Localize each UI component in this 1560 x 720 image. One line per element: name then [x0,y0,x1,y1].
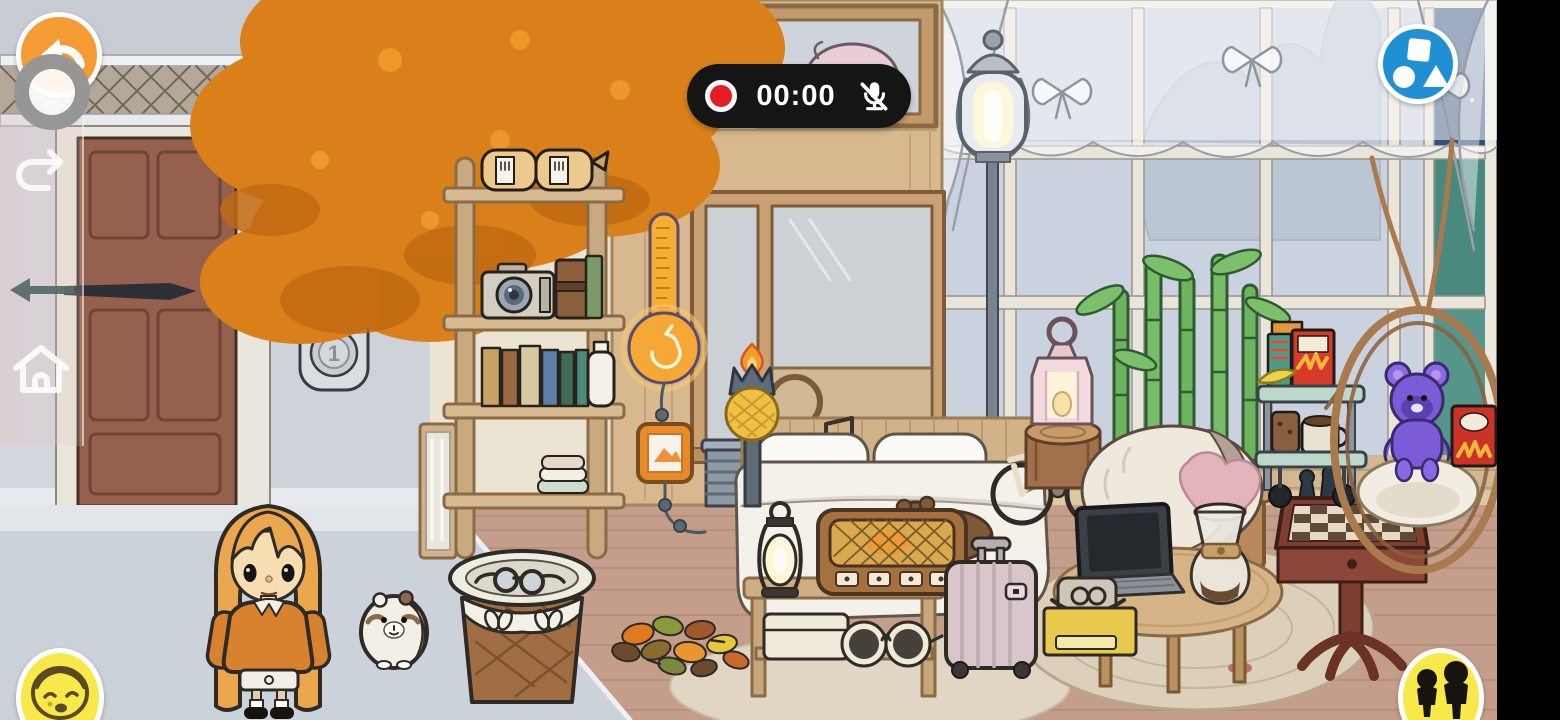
vintage-radio[interactable] [818,510,966,594]
chips-bag[interactable] [1452,406,1496,466]
character-picker-button[interactable] [16,648,104,720]
books-row[interactable] [482,346,588,406]
undo-arrow-icon[interactable] [19,152,60,188]
storage-box[interactable] [764,614,848,659]
picnic-basket[interactable] [450,551,594,702]
recording-time: 00:00 [751,80,841,113]
edit-sidebar [0,116,84,446]
camera-case[interactable] [556,256,602,318]
camera[interactable] [482,264,554,318]
pour-over-coffee[interactable] [1191,504,1249,604]
game-stage: 2 1 [0,0,1560,720]
folded-towels[interactable] [538,456,588,493]
muted-mic-icon[interactable] [855,76,893,116]
shapes-square-circle-triangle-icon [1383,29,1453,99]
girl-character[interactable] [206,506,331,719]
screen-record-ring-button[interactable] [14,54,90,130]
build-mode-button[interactable] [1378,24,1458,104]
bread-bags[interactable] [482,150,608,190]
screen-recorder-pill[interactable]: 00:00 [687,64,911,128]
character-face-icon [21,653,99,720]
record-dot-icon[interactable] [705,80,737,112]
swipe-left-arrow-icon[interactable] [10,278,74,302]
residents-button[interactable] [1398,648,1484,720]
doorbell-floor-1[interactable]: 1 [328,341,340,366]
two-residents-icon [1403,653,1479,720]
home-icon[interactable] [16,348,66,390]
